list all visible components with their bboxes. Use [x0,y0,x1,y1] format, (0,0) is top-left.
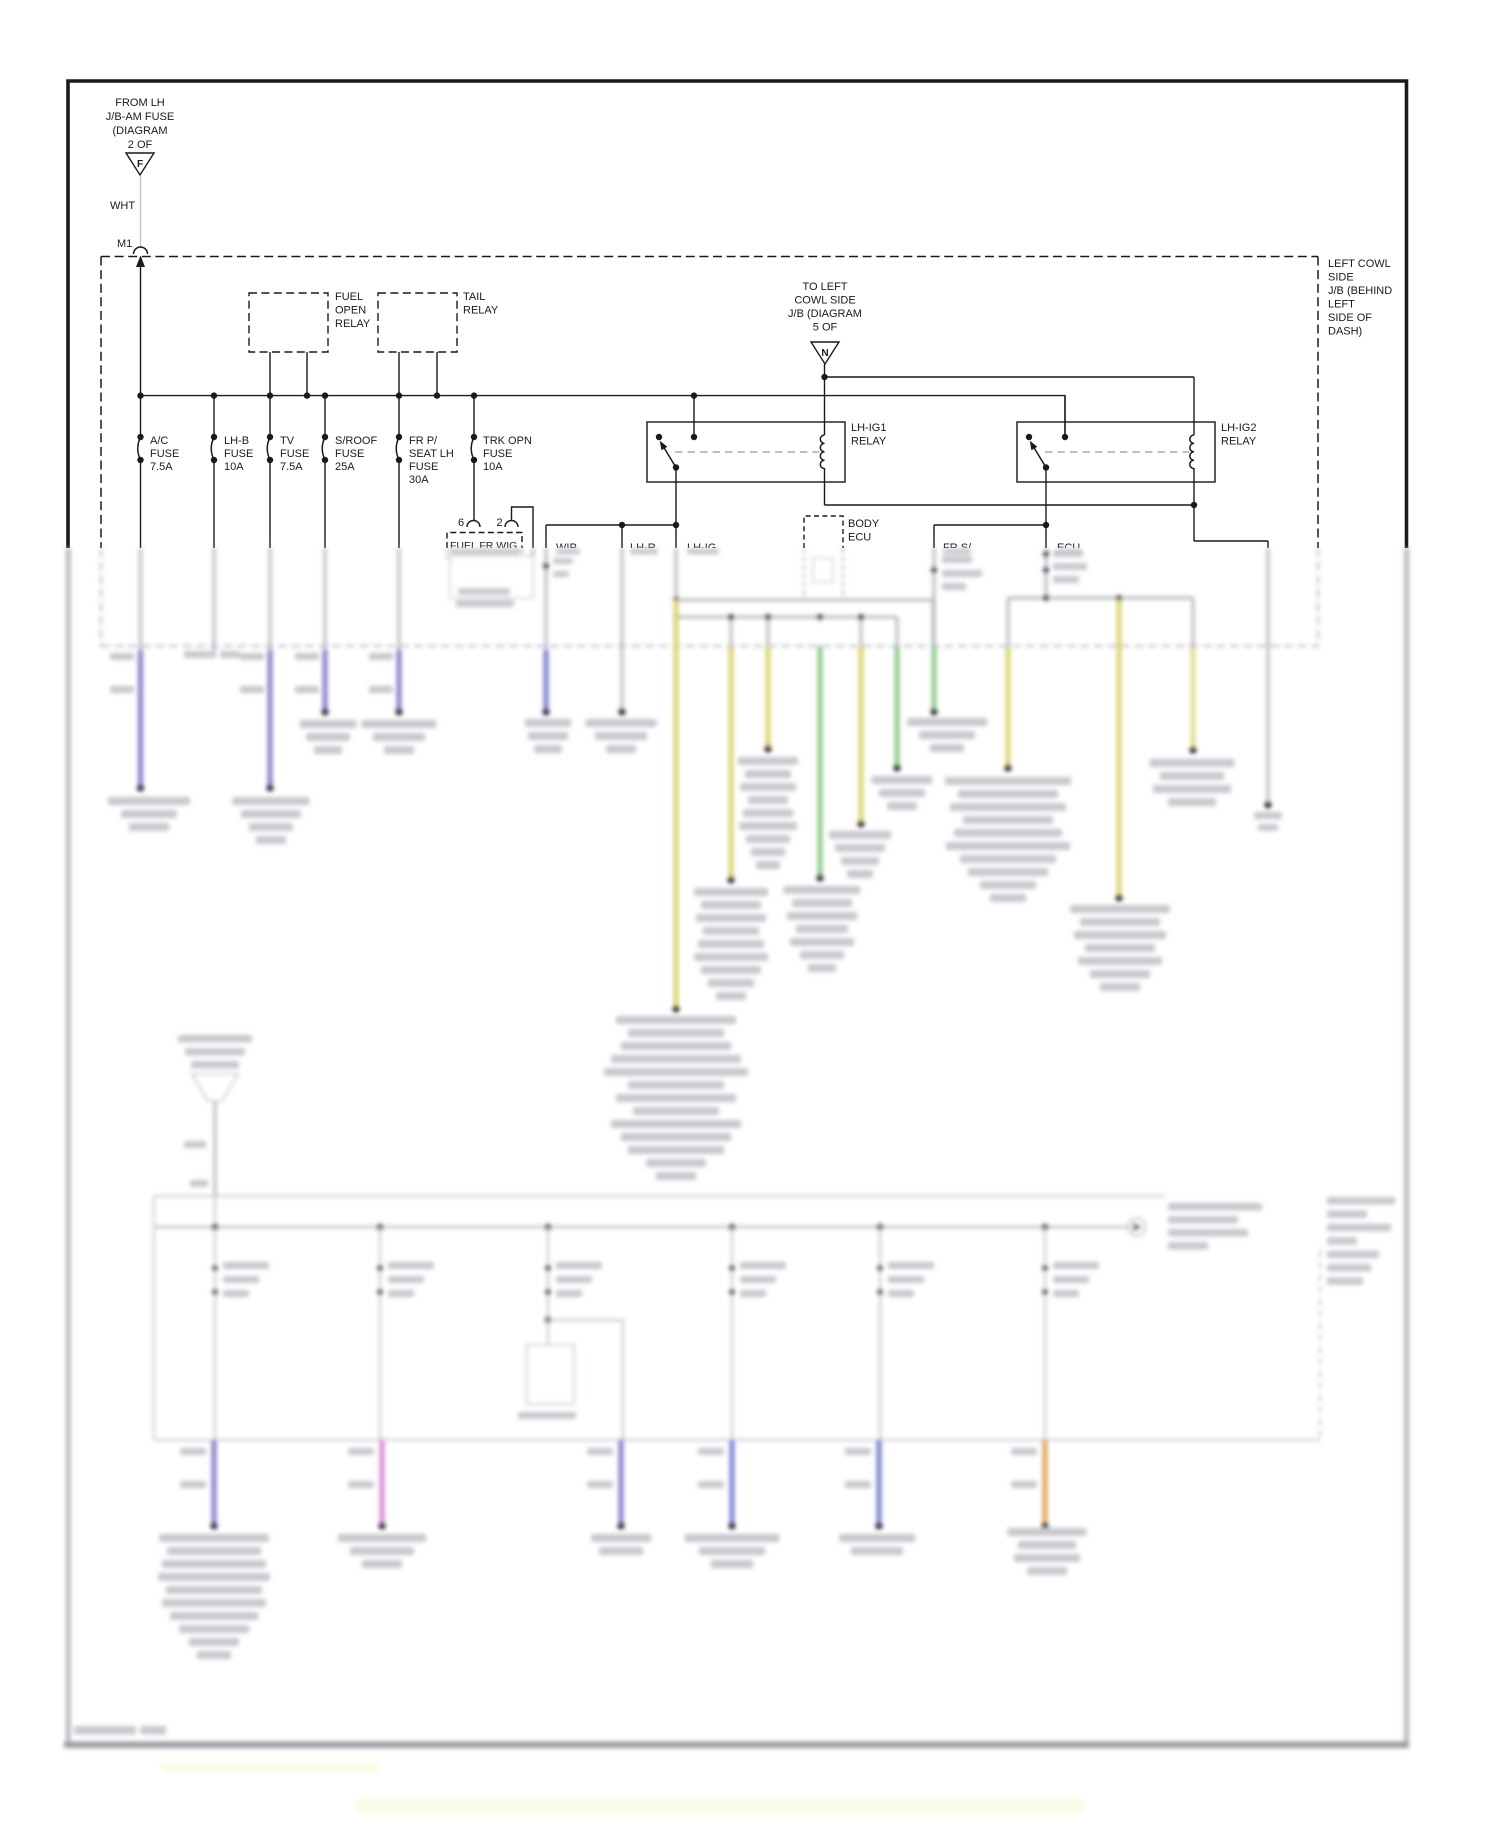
svg-text:RELAY: RELAY [335,318,371,330]
svg-text:5 OF: 5 OF [813,322,838,334]
svg-text:LEFT: LEFT [1328,299,1355,311]
svg-text:30A: 30A [409,474,429,486]
svg-text:10A: 10A [224,461,244,473]
svg-text:25A: 25A [335,461,355,473]
svg-text:RELAY: RELAY [851,436,887,448]
svg-text:TO LEFT: TO LEFT [802,281,847,293]
svg-text:SIDE OF: SIDE OF [1328,312,1372,324]
svg-text:FUEL: FUEL [335,291,363,303]
svg-text:FUSE: FUSE [409,461,438,473]
svg-text:ECU: ECU [848,532,871,544]
svg-text:FUSE: FUSE [335,448,364,460]
svg-text:SEAT LH: SEAT LH [409,448,454,460]
svg-text:LH-IG2: LH-IG2 [1221,422,1256,434]
svg-text:FUSE: FUSE [483,448,512,460]
svg-text:SIDE: SIDE [1328,272,1354,284]
svg-text:LH-B: LH-B [224,435,249,447]
svg-text:RELAY: RELAY [463,305,499,317]
svg-text:J/B (BEHIND: J/B (BEHIND [1328,285,1392,297]
svg-text:OPEN: OPEN [335,305,366,317]
svg-text:10A: 10A [483,461,503,473]
svg-text:FUSE: FUSE [224,448,253,460]
svg-text:7.5A: 7.5A [280,461,303,473]
svg-text:F: F [137,159,143,170]
svg-text:FUSE: FUSE [150,448,179,460]
svg-text:S/ROOF: S/ROOF [335,435,377,447]
svg-text:A/C: A/C [150,435,168,447]
svg-text:N: N [821,348,828,359]
svg-text:TAIL: TAIL [463,291,485,303]
svg-text:6: 6 [458,517,464,529]
svg-text:2: 2 [496,517,502,529]
svg-text:FR P/: FR P/ [409,435,438,447]
svg-text:M1: M1 [117,238,132,250]
svg-text:COWL SIDE: COWL SIDE [794,295,855,307]
svg-text:TRK OPN: TRK OPN [483,435,532,447]
svg-text:LH-IG1: LH-IG1 [851,422,886,434]
svg-text:DASH): DASH) [1328,326,1362,338]
svg-text:FUSE: FUSE [280,448,309,460]
svg-text:LEFT COWL: LEFT COWL [1328,258,1391,270]
svg-text:(DIAGRAM: (DIAGRAM [113,125,168,137]
svg-text:FROM LH: FROM LH [115,97,165,109]
svg-text:RELAY: RELAY [1221,436,1257,448]
svg-text:7.5A: 7.5A [150,461,173,473]
svg-text:J/B (DIAGRAM: J/B (DIAGRAM [788,308,862,320]
svg-text:TV: TV [280,435,295,447]
svg-text:2 OF: 2 OF [128,139,153,151]
svg-text:BODY: BODY [848,518,880,530]
svg-text:J/B-AM FUSE: J/B-AM FUSE [106,111,174,123]
svg-text:WHT: WHT [110,200,135,212]
